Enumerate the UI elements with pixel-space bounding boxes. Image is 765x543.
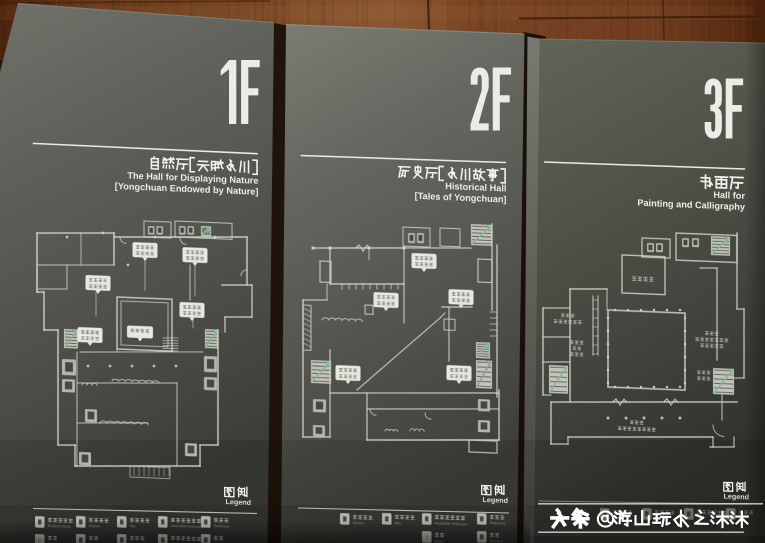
svg-text:Legend: Legend [482,495,508,505]
svg-text:Legend: Legend [225,497,251,507]
svg-text:Hall for: Hall for [713,190,745,201]
